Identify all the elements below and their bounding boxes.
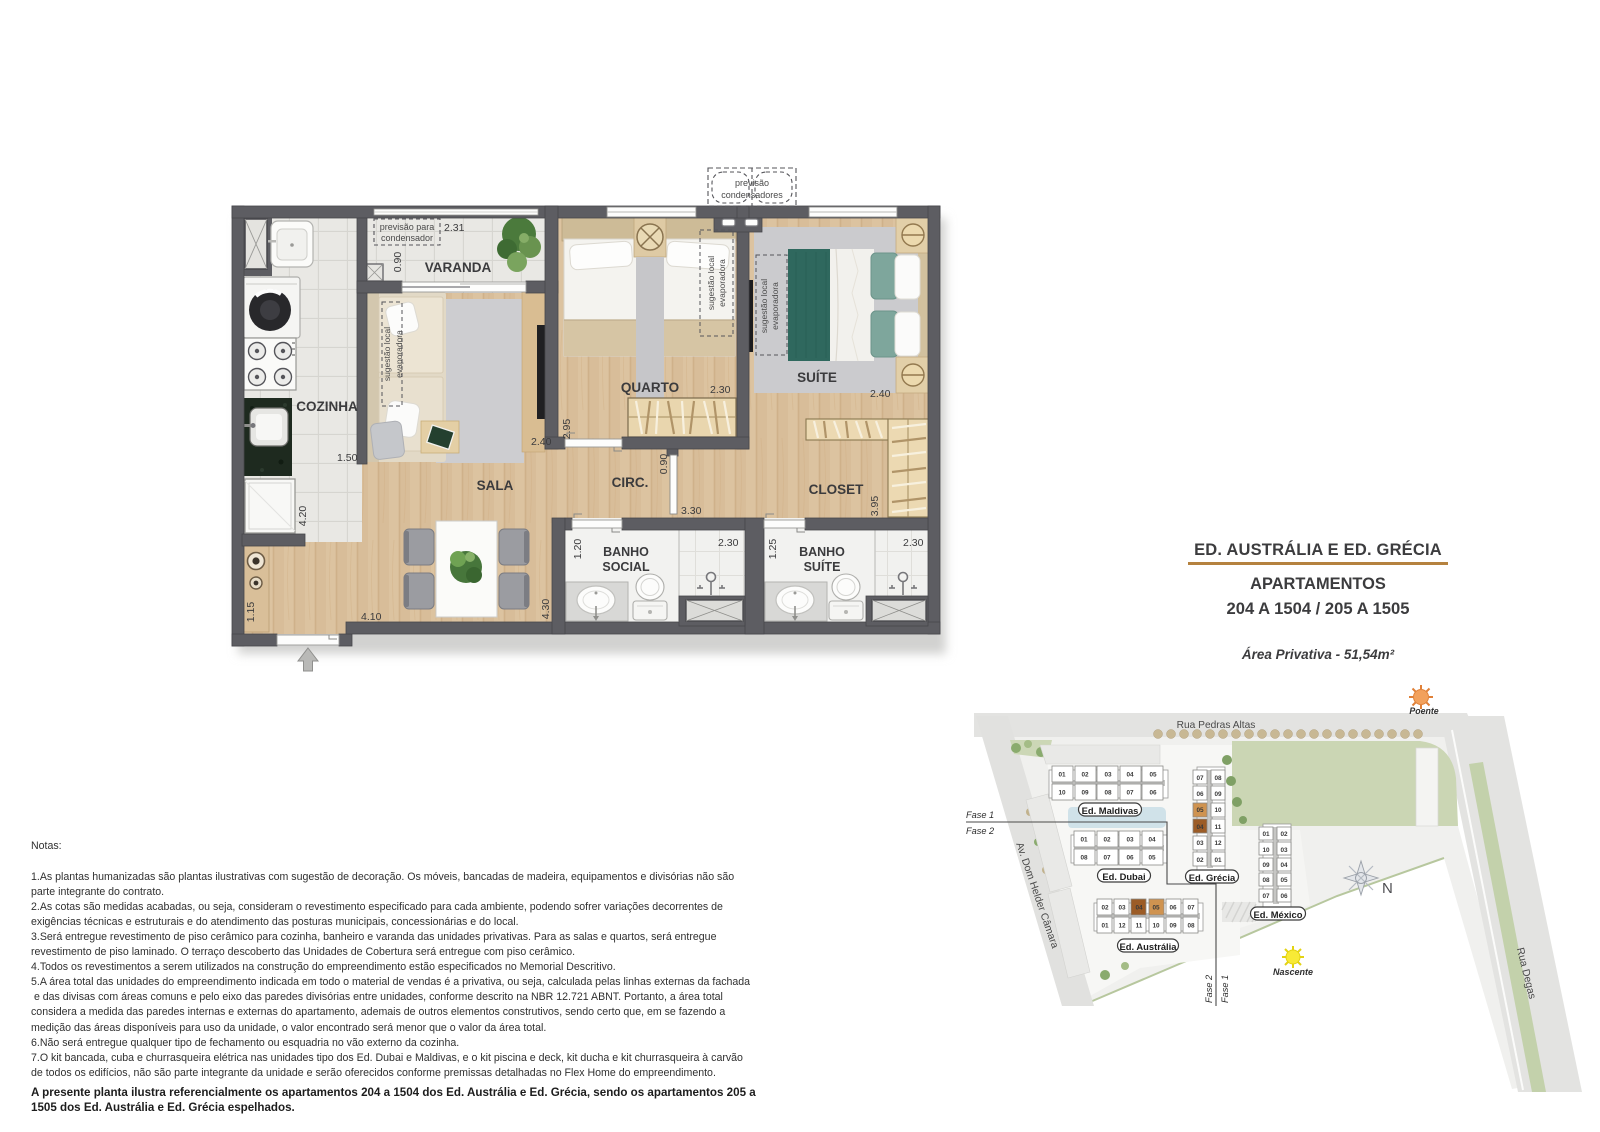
svg-text:12: 12 [1118, 923, 1126, 930]
svg-text:09: 09 [1214, 791, 1222, 798]
svg-text:4.10: 4.10 [361, 611, 382, 623]
svg-text:3.30: 3.30 [681, 505, 702, 517]
svg-text:01: 01 [1262, 831, 1270, 838]
svg-text:07: 07 [1187, 905, 1195, 912]
svg-text:1.20: 1.20 [572, 539, 584, 560]
svg-text:12: 12 [1214, 840, 1222, 847]
svg-text:2.30: 2.30 [710, 384, 731, 396]
svg-text:Ed. Austrália: Ed. Austrália [1120, 941, 1178, 952]
svg-text:CLOSET: CLOSET [809, 482, 865, 497]
svg-text:06: 06 [1169, 905, 1177, 912]
svg-text:02: 02 [1103, 837, 1111, 844]
svg-text:evaporadora: evaporadora [717, 259, 727, 307]
svg-text:06: 06 [1149, 790, 1157, 797]
svg-text:2.40: 2.40 [870, 388, 891, 400]
svg-text:01: 01 [1080, 837, 1088, 844]
svg-text:04: 04 [1280, 862, 1288, 869]
svg-text:Fase 1: Fase 1 [966, 810, 994, 820]
svg-text:2.95: 2.95 [561, 419, 573, 440]
svg-text:01: 01 [1058, 772, 1066, 779]
svg-text:02: 02 [1280, 831, 1288, 838]
svg-text:Poente: Poente [1409, 706, 1438, 716]
svg-text:previsão para: previsão para [380, 222, 435, 232]
svg-text:06: 06 [1126, 855, 1134, 862]
svg-text:2.30: 2.30 [718, 537, 739, 549]
svg-text:2.31: 2.31 [444, 222, 465, 234]
svg-text:05: 05 [1196, 807, 1204, 814]
svg-text:1.25: 1.25 [767, 539, 779, 560]
svg-text:1.50: 1.50 [337, 452, 358, 464]
svg-text:07: 07 [1196, 775, 1204, 782]
svg-text:SALA: SALA [477, 478, 514, 493]
svg-text:SUÍTE: SUÍTE [797, 370, 837, 385]
svg-text:09: 09 [1169, 923, 1177, 930]
svg-text:05: 05 [1152, 905, 1160, 912]
svg-text:evaporadora: evaporadora [394, 330, 404, 378]
svg-text:04: 04 [1196, 824, 1204, 831]
svg-text:Rua Pedras Altas: Rua Pedras Altas [1177, 720, 1256, 731]
svg-text:Ed. Grécia: Ed. Grécia [1189, 872, 1236, 883]
svg-text:03: 03 [1280, 847, 1288, 854]
svg-text:07: 07 [1262, 893, 1270, 900]
svg-text:4.20: 4.20 [297, 506, 309, 527]
svg-text:SOCIAL: SOCIAL [602, 560, 650, 574]
svg-text:05: 05 [1149, 772, 1157, 779]
svg-text:09: 09 [1081, 790, 1089, 797]
svg-text:07: 07 [1103, 855, 1111, 862]
svg-text:BANHO: BANHO [799, 545, 845, 559]
svg-text:COZINHA: COZINHA [296, 399, 358, 414]
svg-text:evaporadora: evaporadora [770, 282, 780, 330]
svg-text:03: 03 [1196, 840, 1204, 847]
svg-text:02: 02 [1081, 772, 1089, 779]
svg-text:previsão: previsão [735, 178, 769, 188]
svg-text:08: 08 [1262, 877, 1270, 884]
svg-text:sugestão local: sugestão local [706, 256, 716, 310]
svg-text:Ed. Dubai: Ed. Dubai [1102, 871, 1145, 882]
svg-text:VARANDA: VARANDA [425, 260, 492, 275]
svg-text:1.15: 1.15 [245, 602, 257, 623]
svg-text:BANHO: BANHO [603, 545, 649, 559]
svg-text:Ed. Maldivas: Ed. Maldivas [1082, 805, 1139, 816]
svg-text:0.90: 0.90 [658, 454, 670, 475]
svg-text:sugestão local: sugestão local [382, 327, 392, 381]
svg-text:01: 01 [1214, 857, 1222, 864]
svg-text:01: 01 [1101, 923, 1109, 930]
svg-text:02: 02 [1196, 857, 1204, 864]
svg-text:03: 03 [1126, 837, 1134, 844]
svg-text:08: 08 [1187, 923, 1195, 930]
svg-text:Fase 2: Fase 2 [1204, 975, 1214, 1003]
svg-text:08: 08 [1214, 775, 1222, 782]
svg-text:11: 11 [1215, 824, 1222, 831]
svg-text:09: 09 [1262, 862, 1270, 869]
svg-text:QUARTO: QUARTO [621, 380, 679, 395]
svg-text:2.30: 2.30 [903, 537, 924, 549]
svg-text:CIRC.: CIRC. [612, 475, 649, 490]
svg-text:Nascente: Nascente [1273, 967, 1313, 977]
svg-text:condensadores: condensadores [721, 190, 783, 200]
svg-text:06: 06 [1196, 791, 1204, 798]
svg-text:Ed. México: Ed. México [1254, 909, 1303, 920]
svg-text:08: 08 [1104, 790, 1112, 797]
svg-text:N: N [1382, 880, 1393, 897]
svg-text:02: 02 [1101, 905, 1109, 912]
svg-text:04: 04 [1148, 837, 1156, 844]
svg-text:Fase 1: Fase 1 [1220, 975, 1230, 1003]
svg-text:06: 06 [1280, 893, 1288, 900]
svg-text:2.40: 2.40 [531, 436, 552, 448]
svg-text:sugestão local: sugestão local [759, 279, 769, 333]
svg-text:4.30: 4.30 [540, 599, 552, 620]
svg-text:03: 03 [1118, 905, 1126, 912]
svg-text:10: 10 [1152, 923, 1160, 930]
svg-text:SUÍTE: SUÍTE [804, 559, 841, 574]
svg-text:Fase 2: Fase 2 [966, 826, 994, 836]
svg-text:0.90: 0.90 [392, 252, 404, 273]
svg-text:10: 10 [1262, 847, 1270, 854]
svg-text:11: 11 [1136, 923, 1143, 930]
svg-text:04: 04 [1135, 905, 1143, 912]
svg-text:10: 10 [1058, 790, 1066, 797]
svg-text:08: 08 [1080, 855, 1088, 862]
svg-text:03: 03 [1104, 772, 1112, 779]
svg-text:condensador: condensador [381, 233, 433, 243]
svg-text:3.95: 3.95 [869, 496, 881, 517]
svg-text:05: 05 [1280, 877, 1288, 884]
svg-text:07: 07 [1126, 790, 1134, 797]
svg-text:10: 10 [1214, 807, 1222, 814]
svg-text:05: 05 [1148, 855, 1156, 862]
svg-text:04: 04 [1126, 772, 1134, 779]
